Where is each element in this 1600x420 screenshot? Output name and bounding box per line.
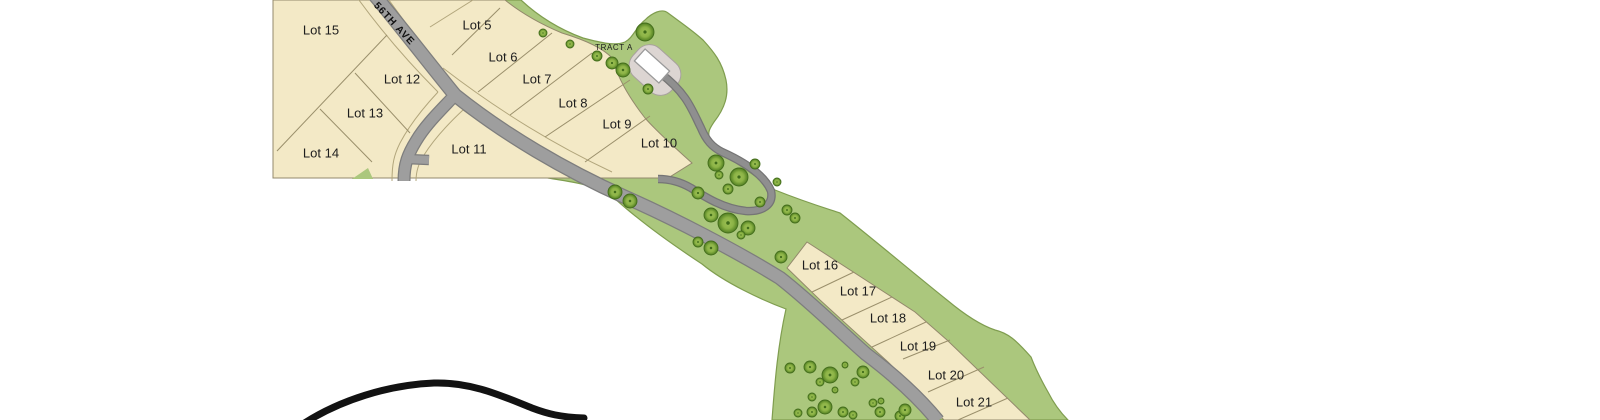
lot-label: Lot 21 (956, 394, 992, 409)
tree-icon (715, 171, 723, 179)
tree-icon (838, 407, 848, 417)
lot-label: Lot 5 (463, 17, 492, 32)
lot-label: Lot 10 (641, 135, 677, 150)
plat-map-svg: Lot 15Lot 5Lot 6Lot 12Lot 7Lot 8Lot 13Lo… (0, 0, 1600, 420)
tree-icon (704, 208, 718, 222)
tree-icon (737, 231, 745, 239)
tree-icon (708, 155, 724, 171)
tree-icon (692, 187, 704, 199)
tree-icon (869, 399, 877, 407)
terrain-contour (303, 383, 584, 420)
lot-label: Lot 14 (303, 145, 339, 160)
lot-label: Lot 8 (559, 95, 588, 110)
tree-icon (718, 213, 738, 233)
tree-icon (539, 29, 547, 37)
tree-icon (851, 378, 859, 386)
lot-label: Lot 13 (347, 105, 383, 120)
tree-icon (693, 237, 703, 247)
tree-icon (818, 400, 832, 414)
tree-icon (832, 387, 838, 393)
tract-label: TRACT A (595, 43, 633, 52)
tree-icon (842, 362, 848, 368)
tree-icon (723, 184, 733, 194)
lot-label: Lot 11 (451, 141, 486, 156)
lot-label: Lot 19 (900, 338, 936, 353)
lot-label: Lot 16 (802, 257, 838, 272)
lot-label: Lot 12 (384, 71, 420, 86)
tree-icon (750, 159, 760, 169)
lot-label: Lot 7 (523, 71, 552, 86)
tree-icon (899, 404, 911, 416)
tree-icon (623, 194, 637, 208)
tree-icon (755, 197, 765, 207)
driveway-stub (407, 159, 429, 160)
tree-icon (643, 84, 653, 94)
tree-icon (878, 398, 884, 404)
tree-icon (816, 378, 824, 386)
tree-icon (730, 168, 748, 186)
tree-icon (785, 363, 795, 373)
tree-icon (608, 185, 622, 199)
tree-icon (636, 23, 654, 41)
tree-icon (857, 366, 869, 378)
plat-map-page: Lot 15Lot 5Lot 6Lot 12Lot 7Lot 8Lot 13Lo… (0, 0, 1600, 420)
hill-outline (303, 383, 584, 420)
tree-icon (704, 241, 718, 255)
lot-label: Lot 9 (603, 116, 632, 131)
tree-icon (616, 63, 630, 77)
tree-icon (807, 407, 817, 417)
tree-icon (875, 407, 885, 417)
lot-label: Lot 6 (489, 49, 518, 64)
lot-label: Lot 20 (928, 367, 964, 382)
tree-icon (822, 367, 838, 383)
lot-label: Lot 17 (840, 283, 876, 298)
tree-icon (566, 40, 574, 48)
tree-icon (808, 393, 816, 401)
tree-icon (782, 205, 792, 215)
lot-label: Lot 15 (303, 22, 339, 37)
tree-icon (790, 213, 800, 223)
lot-label: Lot 18 (870, 310, 906, 325)
tree-icon (773, 178, 781, 186)
tree-icon (794, 409, 802, 417)
tree-icon (775, 251, 787, 263)
tree-icon (849, 411, 857, 419)
tree-icon (592, 51, 602, 61)
tree-icon (804, 361, 816, 373)
